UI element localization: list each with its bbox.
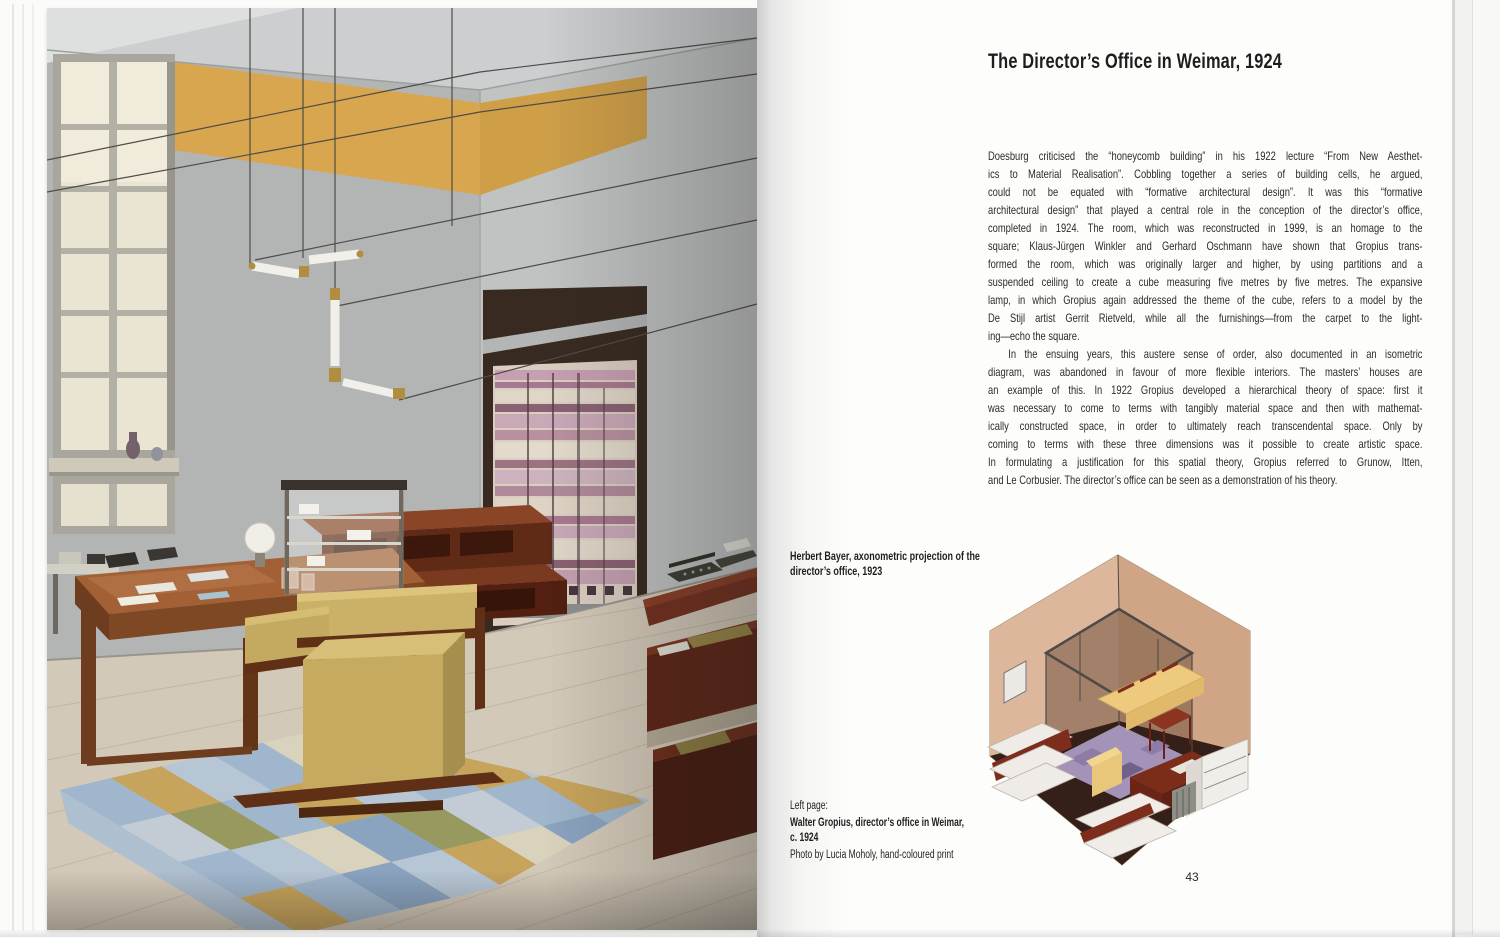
page-edge (1473, 0, 1500, 937)
photo-vignette (47, 8, 757, 930)
photo-caption-credit: Photo by Lucia Moholy, hand-coloured pri… (790, 848, 997, 863)
axonometric-figure (980, 551, 1290, 881)
page-edge-line (32, 4, 34, 931)
photo-caption-intro: Left page: (790, 799, 997, 814)
page-edge-line (22, 4, 24, 931)
body-text: Doesburg criticised the “honeycomb build… (988, 147, 1422, 489)
body-paragraph: In the ensuing years, this austere sense… (988, 345, 1422, 489)
book-spread: The Director’s Office in Weimar, 1924 Do… (0, 0, 1500, 937)
left-page-photo (47, 8, 757, 930)
photo-caption-title: Walter Gropius, director’s office in Wei… (790, 816, 997, 846)
left-page (47, 8, 757, 930)
photo-bottom-shadow (47, 870, 757, 930)
figure-caption: Herbert Bayer, axonometric projection of… (790, 550, 1008, 579)
page-number: 43 (1137, 870, 1247, 884)
page-title: The Director’s Office in Weimar, 1924 (988, 50, 1362, 74)
page-edge (1455, 0, 1472, 935)
body-paragraph: Doesburg criticised the “honeycomb build… (988, 147, 1422, 345)
page-edge-line (12, 4, 14, 931)
photo-caption: Left page: Walter Gropius, director’s of… (790, 799, 997, 863)
right-page: The Director’s Office in Weimar, 1924 Do… (757, 0, 1462, 937)
